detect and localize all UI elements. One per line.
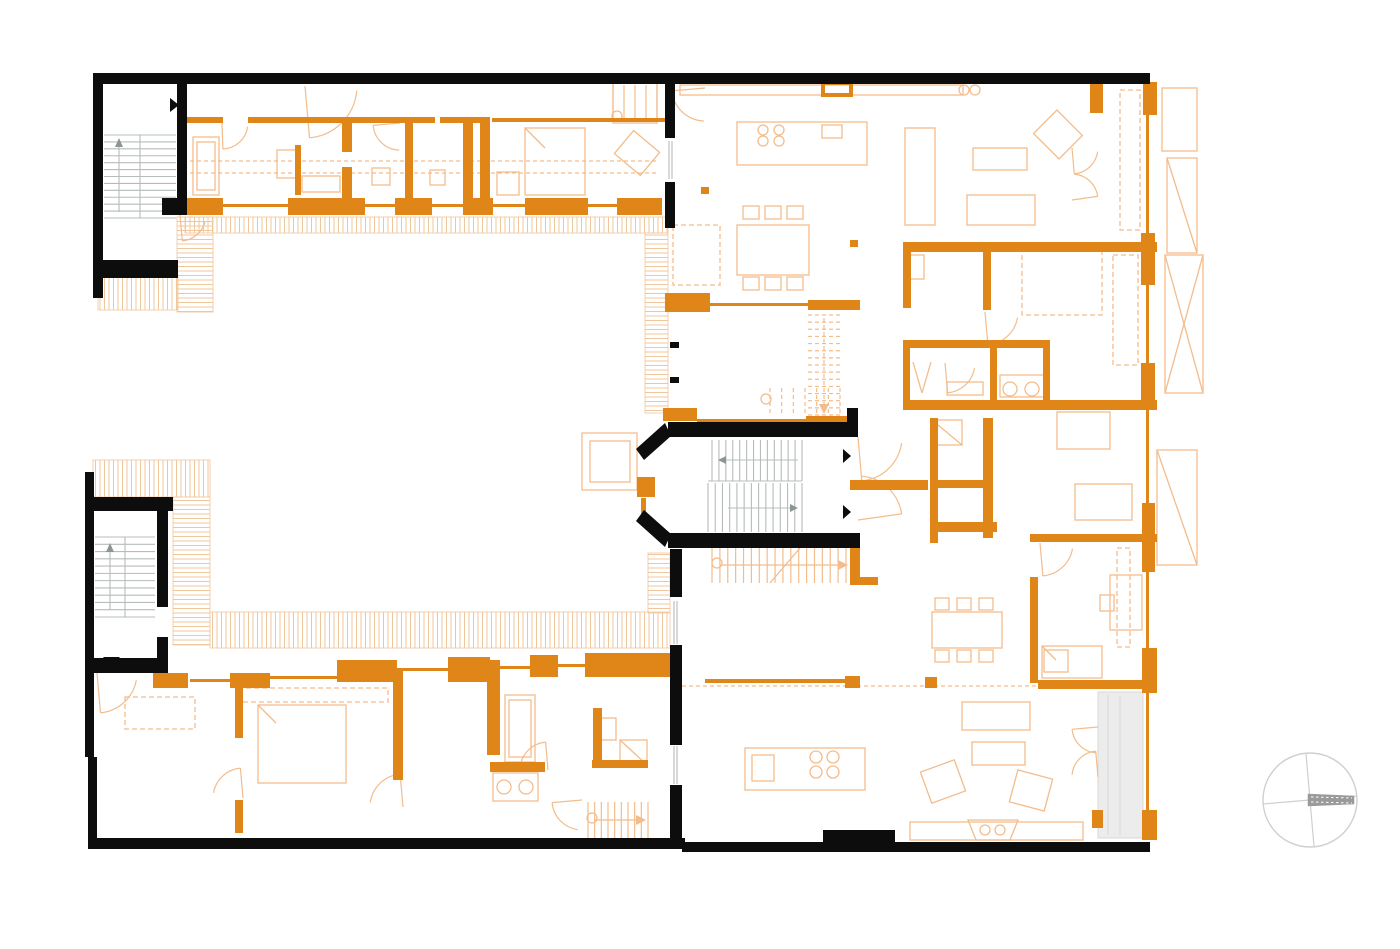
balcony-fill-layer — [1098, 692, 1143, 838]
terrace-hatch-layer — [93, 217, 670, 648]
annotation-layer — [103, 98, 851, 666]
floor-plan-page — [0, 0, 1400, 949]
new-walls-layer — [153, 82, 1157, 840]
stairs-layer — [95, 85, 846, 840]
floor-plan-drawing — [0, 0, 1400, 949]
north-compass-icon — [1263, 753, 1357, 847]
existing-walls-layer — [85, 73, 1150, 852]
furniture-layer — [97, 83, 1203, 840]
